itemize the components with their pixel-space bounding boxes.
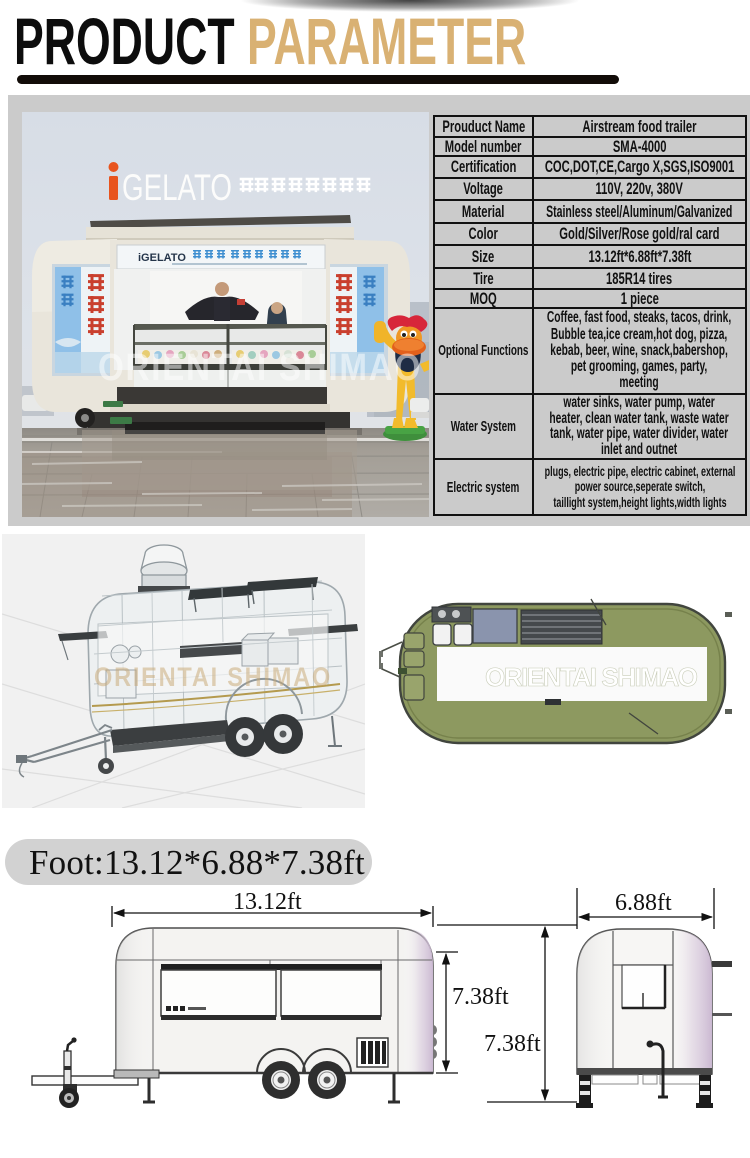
svg-text:7.38ft: 7.38ft	[484, 1031, 541, 1057]
svg-text:GELATO: GELATO	[122, 167, 232, 208]
svg-text:7.38ft: 7.38ft	[452, 984, 509, 1010]
svg-text:iGELATO: iGELATO	[138, 252, 186, 264]
svg-text:ORIENTAI SHIMAO: ORIENTAI SHIMAO	[94, 662, 332, 692]
svg-text:ORIENTAI SHIMAO: ORIENTAI SHIMAO	[98, 347, 422, 389]
svg-text:13.12ft: 13.12ft	[233, 889, 302, 915]
svg-text:6.88ft: 6.88ft	[615, 890, 672, 916]
svg-text:ORIENTAI SHIMAO: ORIENTAI SHIMAO	[485, 662, 700, 692]
